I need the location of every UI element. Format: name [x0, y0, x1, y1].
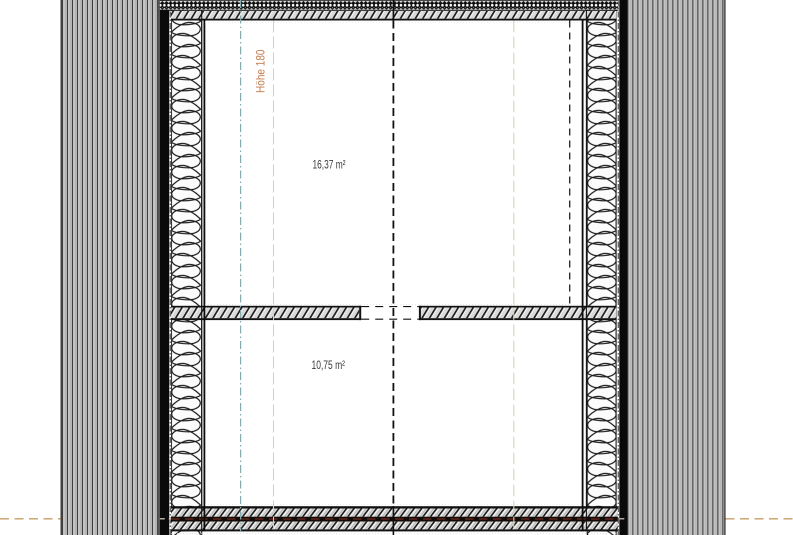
- svg-text:Höhe 180: Höhe 180: [254, 49, 268, 93]
- svg-text:10,75 m²: 10,75 m²: [312, 358, 346, 372]
- svg-text:16,37 m²: 16,37 m²: [313, 157, 346, 171]
